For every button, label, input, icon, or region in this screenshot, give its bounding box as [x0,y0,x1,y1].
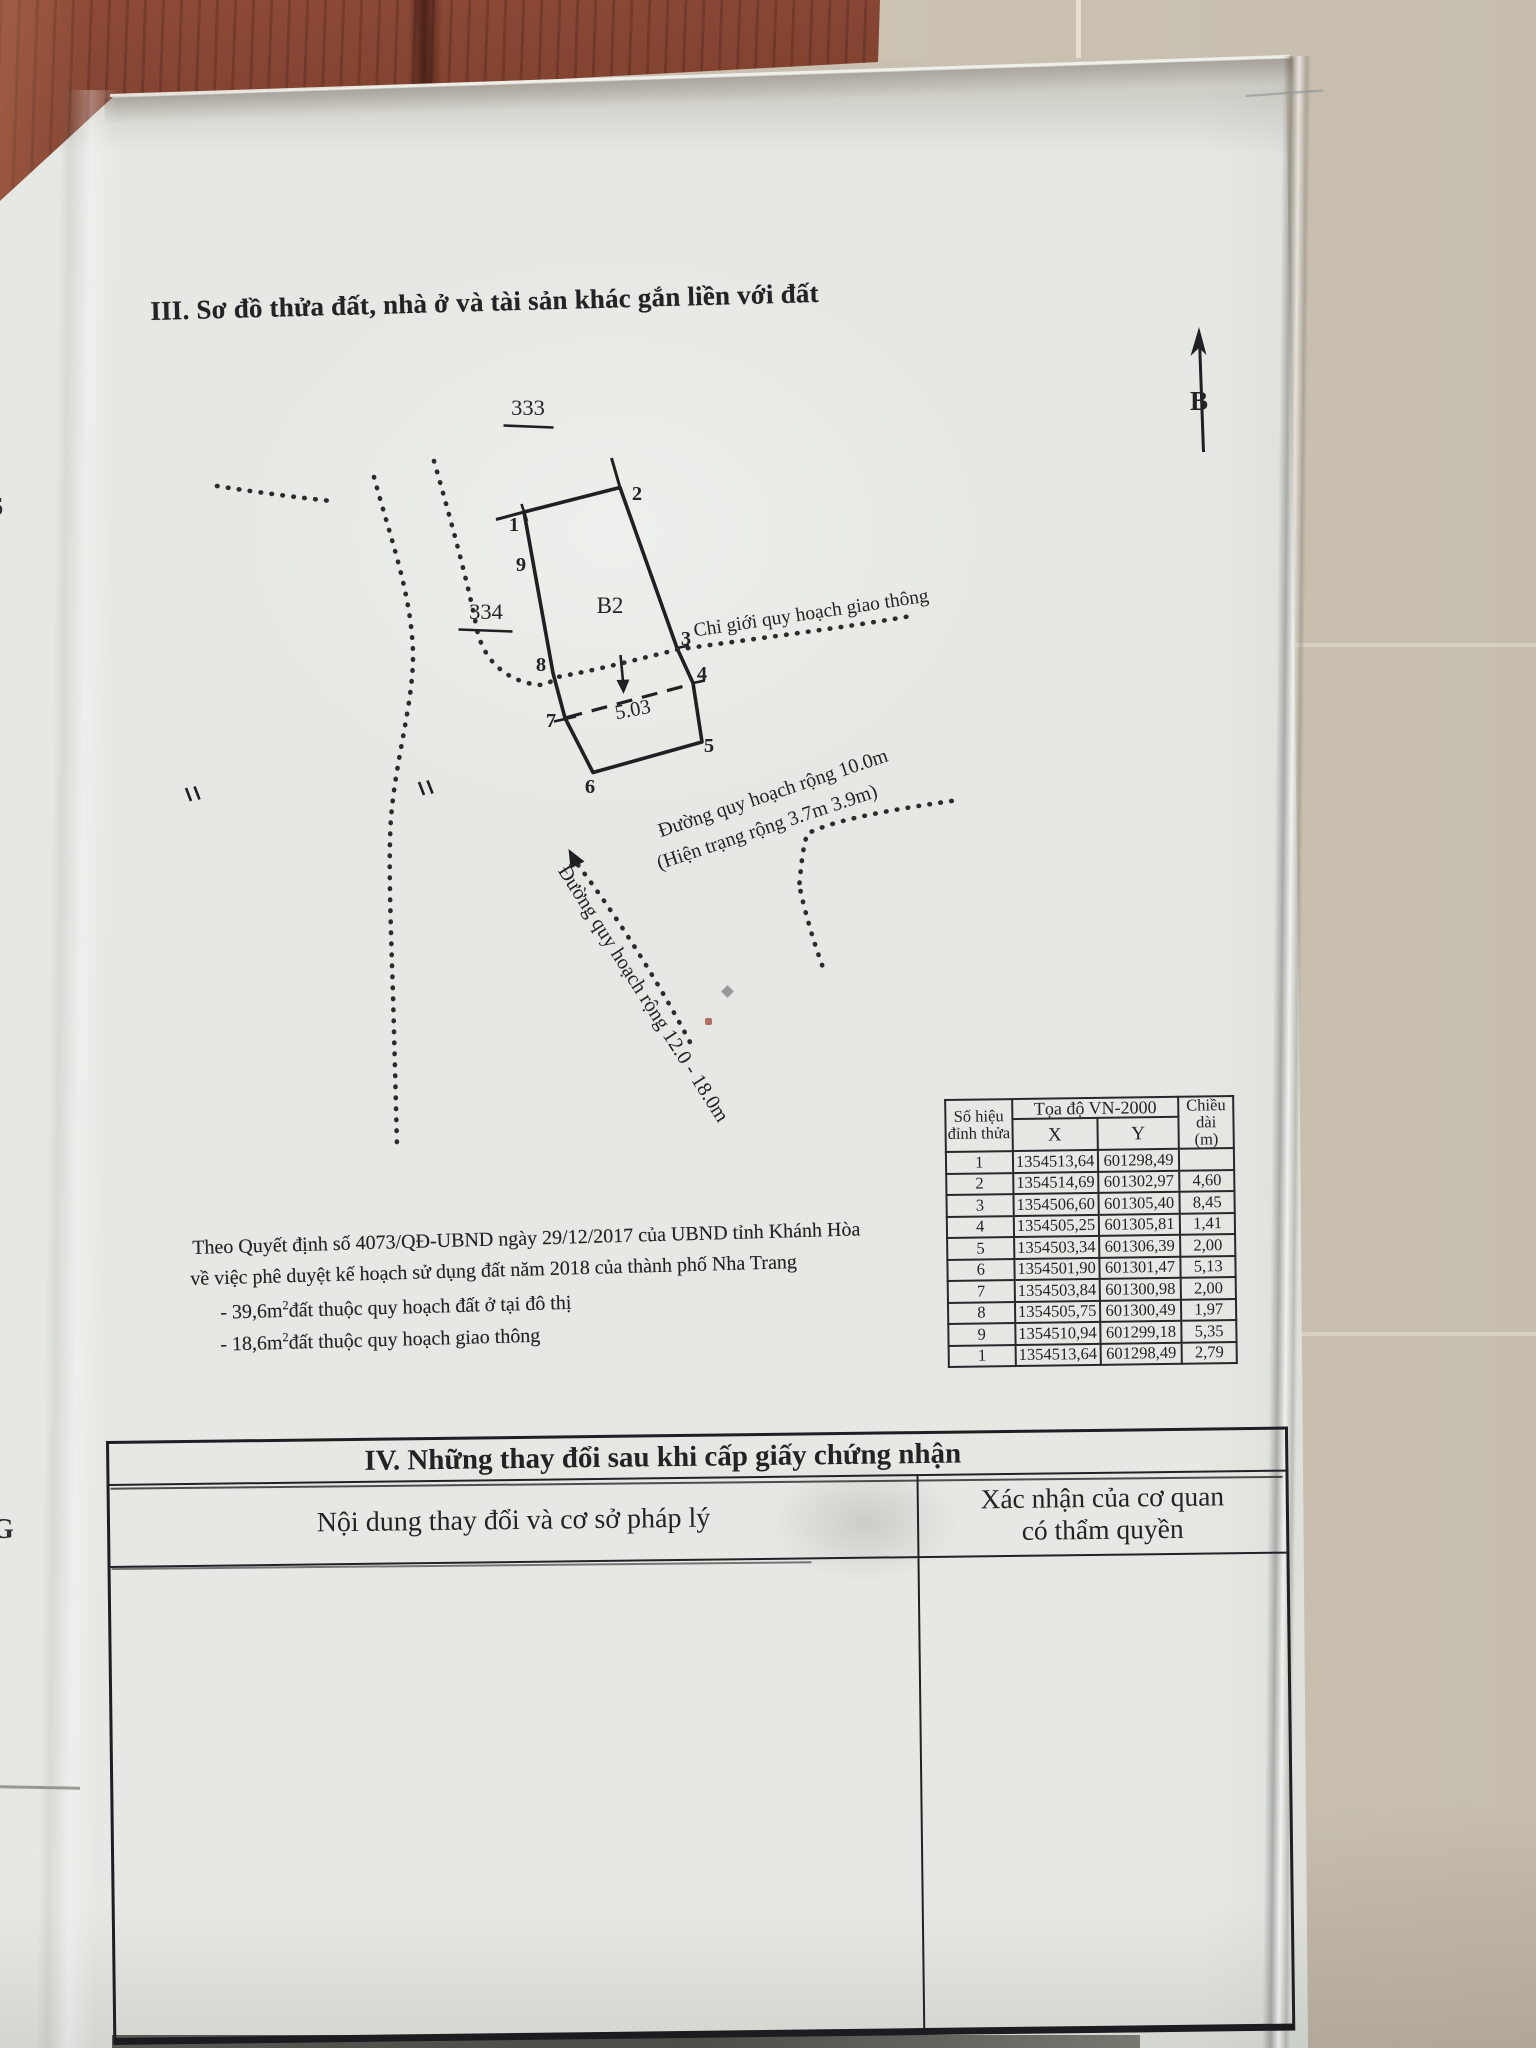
cell-length: 8,45 [1180,1191,1235,1213]
section4-table: IV. Những thay đổi sau khi cấp giấy chứn… [106,1427,1295,2045]
vertex-label-6: 6 [585,776,595,798]
underline-333 [504,426,554,428]
coordinate-table: Số hiệuđỉnh thửa Tọa độ VN-2000 Chiềudài… [944,1095,1238,1369]
cell-length: 1,41 [1180,1213,1235,1235]
cell-length: 2,79 [1182,1342,1237,1364]
dimension-label: 5.03 [613,696,652,724]
cell-vertex-id: 8 [948,1302,1015,1324]
cell-vertex-id: 6 [947,1259,1014,1281]
vertex-label-7: 7 [546,710,556,732]
cell-x: 1354503,34 [1014,1236,1099,1259]
edge-fragment-bottom: G [0,1514,14,1546]
road-edge-dotted-northwest [217,486,336,502]
cell-vertex-id: 1 [946,1152,1013,1174]
cell-x: 1354501,90 [1014,1258,1099,1281]
north-label: B [1190,386,1208,416]
cell-length [1179,1148,1234,1170]
cell-y: 601306,39 [1099,1235,1181,1258]
cell-y: 601302,97 [1098,1171,1180,1194]
road-boundary-dotted [434,461,908,685]
underline-334 [459,630,513,632]
cell-y: 601300,49 [1100,1300,1182,1323]
note-area-traffic-value: - 18,6m [220,1332,283,1356]
width-arrow [621,655,624,681]
cell-length: 4,60 [1180,1170,1235,1192]
cell-vertex-id: 1 [949,1345,1016,1367]
scan-artifact-dash [1246,91,1323,97]
edge-fragment-top: 6 [0,492,3,522]
section4-col-left-header: Nội dung thay đổi và cơ sở pháp lý [108,1475,918,1567]
vertex-label-4: 4 [697,663,707,685]
vertex-label-8: 8 [536,654,546,676]
road-edge-dotted-west [374,477,413,1148]
coord-header-length: Chiềudài(m) [1179,1096,1234,1149]
cell-length: 5,13 [1181,1256,1236,1278]
cell-y: 601299,18 [1100,1321,1182,1344]
adjacent-parcel-333: 333 [511,395,545,420]
road2-label: Đường quy hoạch rộng 12.0 - 18.0m [553,861,733,1126]
vertex-label-9: 9 [516,554,526,576]
cell-length: 1,97 [1181,1299,1236,1321]
parcel-label: B2 [597,593,624,618]
cell-vertex-id: 2 [946,1173,1013,1195]
photo-scene: B 333 334 B2 5.03 1 2 3 4 5 [0,0,1536,2048]
cell-y: 601298,49 [1100,1343,1182,1366]
table-row: 11354513,64601298,492,79 [949,1342,1237,1368]
cell-length: 2,00 [1181,1277,1236,1299]
vertex-label-1: 1 [509,514,519,536]
road-edge-dotted-south [578,865,692,1046]
vertex-label-3: 3 [681,628,691,650]
coord-header-system: Tọa độ VN-2000 [1012,1097,1179,1120]
coord-header-y: Y [1097,1117,1179,1150]
cell-x: 1354513,64 [1012,1150,1097,1173]
cell-vertex-id: 7 [948,1281,1015,1303]
cell-vertex-id: 4 [947,1216,1014,1238]
cell-vertex-id: 3 [946,1195,1013,1217]
adjacent-parcel-334: 334 [469,599,503,624]
note-area-urban-value: - 39,6m [220,1300,283,1324]
vertex-label-2: 2 [632,483,642,505]
boundary-label: Chỉ giới quy hoạch giao thông [692,586,930,642]
vertex-label-5: 5 [704,735,714,757]
cell-x: 1354503,84 [1014,1279,1099,1302]
cell-vertex-id: 5 [947,1238,1014,1260]
cell-x: 1354513,64 [1015,1344,1100,1367]
section4-body-right [918,1553,1293,2032]
section4-body-left [109,1557,924,2041]
cell-vertex-id: 9 [948,1324,1015,1346]
cell-y: 601298,49 [1098,1149,1180,1172]
cell-x: 1354505,75 [1015,1301,1100,1324]
cell-y: 601300,98 [1099,1278,1181,1301]
cell-length: 2,00 [1180,1234,1235,1256]
cell-x: 1354506,60 [1013,1193,1098,1216]
cell-y: 601305,81 [1098,1214,1180,1237]
width-arrow-head [617,680,630,695]
section4-col-right-header: Xác nhận của cơ quancó thẩm quyền [917,1471,1287,1558]
road-edge-dotted-east-lower [801,891,824,969]
coord-table-body: 11354513,64601298,4921354514,69601302,97… [946,1148,1237,1367]
cell-length: 5,35 [1182,1320,1237,1342]
cell-x: 1354510,94 [1015,1322,1100,1345]
cell-x: 1354514,69 [1013,1172,1098,1195]
boundary-extension-top [612,458,621,488]
cell-x: 1354505,25 [1013,1215,1098,1238]
coord-header-x: X [1012,1118,1098,1151]
cell-y: 601301,47 [1099,1257,1181,1280]
cell-y: 601305,40 [1098,1192,1180,1215]
coord-header-vertex: Số hiệuđỉnh thửa [945,1099,1012,1152]
